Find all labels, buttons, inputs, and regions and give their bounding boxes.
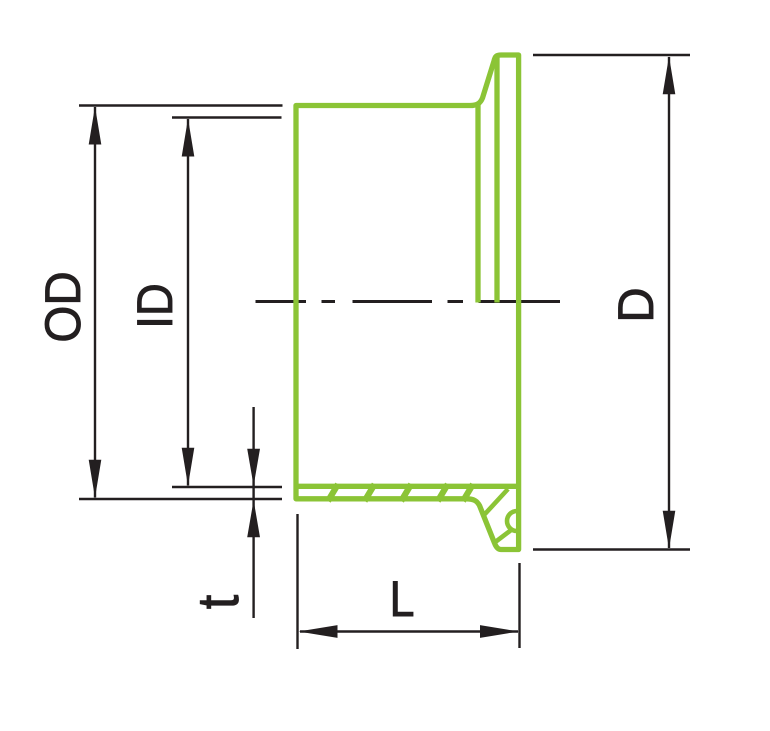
svg-text:L: L — [389, 572, 414, 628]
svg-text:ID: ID — [128, 283, 183, 329]
svg-text:D: D — [609, 287, 665, 322]
svg-text:OD: OD — [36, 271, 91, 342]
svg-text:t: t — [185, 595, 250, 610]
